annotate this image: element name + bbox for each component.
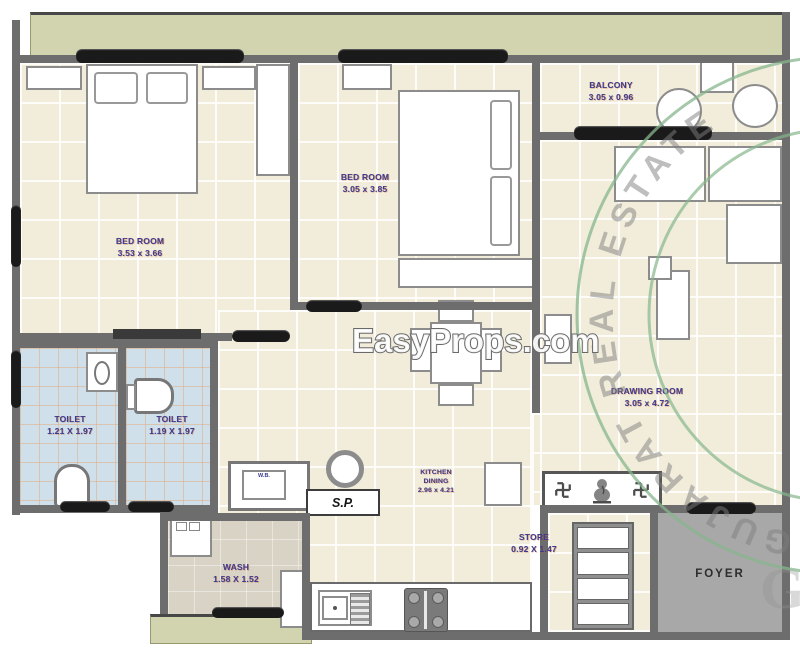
bedroom2-door-icon [306,300,362,312]
wall-bed1-bed2 [290,63,298,310]
basin-box [86,352,118,392]
sofa-chaise [726,204,782,264]
swastika-icon [632,481,650,499]
wall-wash-right [302,513,310,632]
entrance-threshold-mat [542,471,662,509]
drawing-room-window-icon [574,126,712,140]
sofa-seat [614,146,706,202]
opening-kitchen-drawing [532,413,540,505]
wall-foyer-top-b [754,505,782,513]
utility-sink [280,570,304,628]
washing-machine-icon [170,517,212,557]
swastika-icon [554,481,572,499]
wall-toilet-mid [118,348,126,505]
tv-unit [656,270,690,340]
floor-plan: S.P. W.B. [0,0,800,656]
bedroom1-door-icon [232,330,290,342]
drawing-room-label: DRAWING ROOM3.05 x 4.72 [582,386,712,410]
sideboard [544,314,572,364]
dining-chair [438,384,474,406]
wall-bottom [302,632,790,640]
store-rack [572,522,634,630]
bedroom1-window-icon [76,49,244,63]
wall-store-right [650,505,658,632]
wash-label: WASH1.58 X 1.52 [198,562,274,586]
toilet-wc-icon [134,378,174,414]
nightstand [26,66,82,90]
bedroom2-window-icon [338,49,508,63]
dining-chair [480,328,502,372]
balcony-label: BALCONY3.05 x 0.96 [556,80,666,104]
wash-door-icon [212,607,284,618]
wall-toilet-bottom [20,505,210,513]
ganesha-icon [590,476,614,504]
wb-label: W.B. [242,473,286,479]
toilet2-label: TOILET1.19 X 1.97 [132,414,212,438]
bedroom1-side-window-icon [11,205,21,267]
nightstand [342,64,392,90]
wall-toilet-top [20,340,218,348]
nightstand [202,66,256,90]
wall-store-left [540,505,548,632]
toilet-loft-lintel [113,329,201,339]
toilet1-side-window-icon [11,350,21,408]
wall-foyer-top-a [658,505,688,513]
kitchen-dining-label: KITCHENDINING2.96 x 4.21 [400,468,472,496]
wall-left [12,20,20,515]
wall-wash-top [160,513,310,521]
balcony-table [700,61,734,93]
toilet1-label: TOILET1.21 X 1.97 [28,414,112,438]
refrigerator [484,462,522,506]
wall-wash-left [160,513,168,614]
main-entrance-door-icon [686,502,756,514]
wc-tank [126,384,136,410]
dining-table [430,322,482,384]
store-label: STORE0.92 X 1.47 [492,532,576,556]
soil-pipe-icon [326,450,364,488]
foyer-label: FOYER [688,566,752,582]
sink-drainboard-icon [350,593,370,625]
wall-store-top [548,505,650,513]
sp-label: S.P. [332,496,354,510]
wall-right [782,12,790,640]
bedroom1-label: BED ROOM3.53 x 3.66 [85,236,195,260]
dining-chair [410,328,432,372]
toilet2-vent-icon [128,501,174,512]
tv-corner-table [648,256,672,280]
wardrobe [256,64,290,176]
sofa-seat [708,146,782,202]
bedroom2-label: BED ROOM3.05 x 3.85 [310,172,420,196]
round-planter [732,84,778,128]
toilet1-vent-icon [60,501,110,512]
sink-drain-icon [333,606,337,610]
wall-mid-vertical [532,63,540,413]
dresser [398,258,536,288]
gas-stove-icon [404,588,448,632]
sp-label-box: S.P. [306,489,380,516]
double-bed [86,64,198,194]
